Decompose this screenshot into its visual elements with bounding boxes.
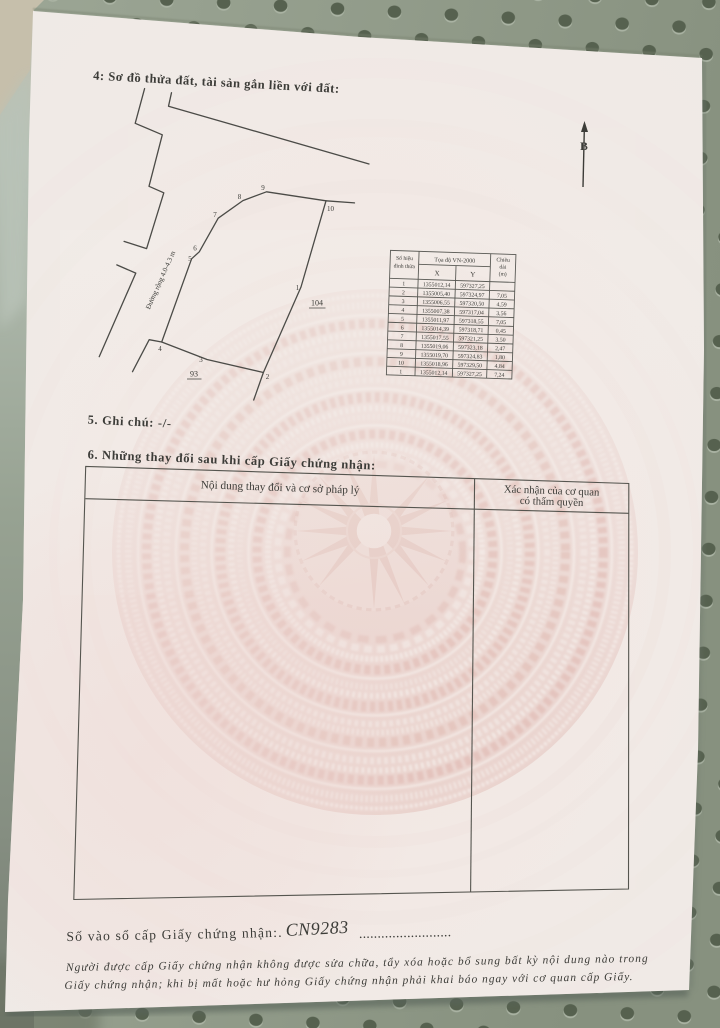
svg-text:3: 3 — [402, 299, 405, 305]
svg-text:1355005,40: 1355005,40 — [423, 291, 451, 298]
svg-text:6: 6 — [401, 325, 404, 331]
svg-text:(m): (m) — [499, 271, 507, 278]
svg-text:X: X — [434, 269, 439, 277]
svg-text:1,80: 1,80 — [495, 355, 505, 361]
svg-text:597324,83: 597324,83 — [458, 354, 483, 361]
svg-text:1355017,55: 1355017,55 — [421, 335, 449, 342]
svg-text:có thẩm quyền: có thẩm quyền — [520, 495, 585, 509]
svg-text:9: 9 — [400, 352, 403, 358]
svg-text:1355011,97: 1355011,97 — [422, 317, 450, 324]
svg-text:1: 1 — [402, 281, 405, 287]
svg-text:0,45: 0,45 — [496, 329, 506, 335]
svg-text:10: 10 — [398, 361, 404, 367]
svg-text:10: 10 — [327, 205, 335, 213]
svg-text:8: 8 — [238, 193, 242, 201]
svg-text:93: 93 — [190, 370, 198, 379]
svg-text:4: 4 — [401, 308, 404, 314]
svg-text:Chiều: Chiều — [496, 256, 510, 263]
svg-text:8: 8 — [400, 343, 403, 349]
svg-text:CN9283: CN9283 — [285, 917, 349, 940]
svg-text:597318,71: 597318,71 — [459, 327, 484, 334]
svg-text:3,50: 3,50 — [495, 337, 505, 343]
svg-text:7: 7 — [213, 211, 217, 219]
svg-text:104: 104 — [311, 299, 323, 308]
svg-text:597324,97: 597324,97 — [460, 292, 485, 299]
svg-text:B: B — [580, 141, 588, 153]
svg-text:Y: Y — [470, 271, 475, 279]
svg-text:4: 4 — [158, 345, 162, 353]
svg-text:4,84: 4,84 — [494, 364, 504, 370]
svg-text:6: 6 — [193, 245, 197, 253]
svg-text:597321,25: 597321,25 — [458, 336, 483, 343]
svg-text:2: 2 — [266, 373, 270, 381]
svg-text:1355019,70: 1355019,70 — [420, 352, 448, 359]
svg-text:7,05: 7,05 — [497, 293, 507, 299]
svg-text:597320,50: 597320,50 — [459, 301, 484, 308]
svg-text:dài: dài — [499, 265, 506, 271]
svg-text:2: 2 — [402, 290, 405, 296]
svg-text:1355007,38: 1355007,38 — [422, 308, 450, 315]
svg-text:1355012,14: 1355012,14 — [423, 282, 451, 289]
svg-text:.........................: ......................... — [359, 924, 452, 941]
svg-text:1355019,06: 1355019,06 — [421, 344, 449, 351]
svg-text:3: 3 — [199, 356, 203, 364]
svg-text:1355006,55: 1355006,55 — [422, 300, 450, 307]
svg-text:597323,18: 597323,18 — [458, 345, 483, 352]
svg-text:9: 9 — [261, 184, 265, 192]
svg-text:1355012,14: 1355012,14 — [420, 370, 448, 377]
svg-text:1: 1 — [399, 369, 402, 375]
svg-text:597318,55: 597318,55 — [459, 319, 484, 326]
svg-text:7,05: 7,05 — [496, 320, 506, 326]
svg-text:7: 7 — [400, 334, 403, 340]
svg-text:597327,25: 597327,25 — [460, 283, 485, 290]
svg-text:Số hiệu: Số hiệu — [396, 255, 413, 263]
svg-text:597329,50: 597329,50 — [457, 362, 482, 369]
svg-text:7,24: 7,24 — [494, 373, 504, 379]
svg-text:1: 1 — [296, 284, 300, 292]
svg-text:4,59: 4,59 — [496, 302, 506, 308]
svg-text:5: 5 — [401, 317, 404, 323]
svg-text:1355014,39: 1355014,39 — [421, 326, 449, 333]
svg-text:3,56: 3,56 — [496, 311, 506, 317]
svg-text:597327,25: 597327,25 — [457, 371, 482, 378]
svg-text:597317,04: 597317,04 — [459, 310, 484, 317]
svg-text:2,47: 2,47 — [495, 346, 505, 352]
svg-text:5: 5 — [188, 255, 192, 263]
svg-text:1355018,96: 1355018,96 — [420, 361, 448, 368]
svg-text:đỉnh thửa: đỉnh thửa — [394, 264, 416, 271]
